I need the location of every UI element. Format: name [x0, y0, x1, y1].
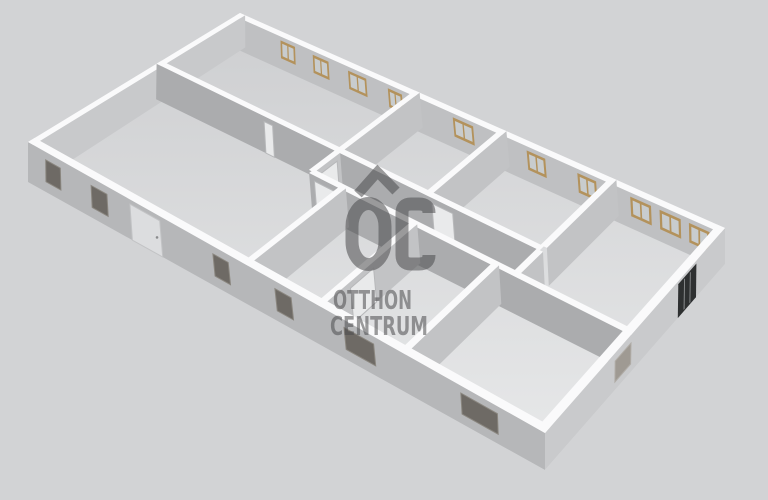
- watermark-line2: CENTRUM: [330, 312, 428, 342]
- door-interior: [264, 122, 274, 158]
- floorplan-3d-view: OTTHON CENTRUM: [0, 0, 768, 500]
- door-handle: [156, 236, 159, 239]
- window-tan-pane: [288, 47, 294, 62]
- window-tan-pane: [282, 44, 287, 59]
- floorplan-viewport: OTTHON CENTRUM: [0, 0, 768, 500]
